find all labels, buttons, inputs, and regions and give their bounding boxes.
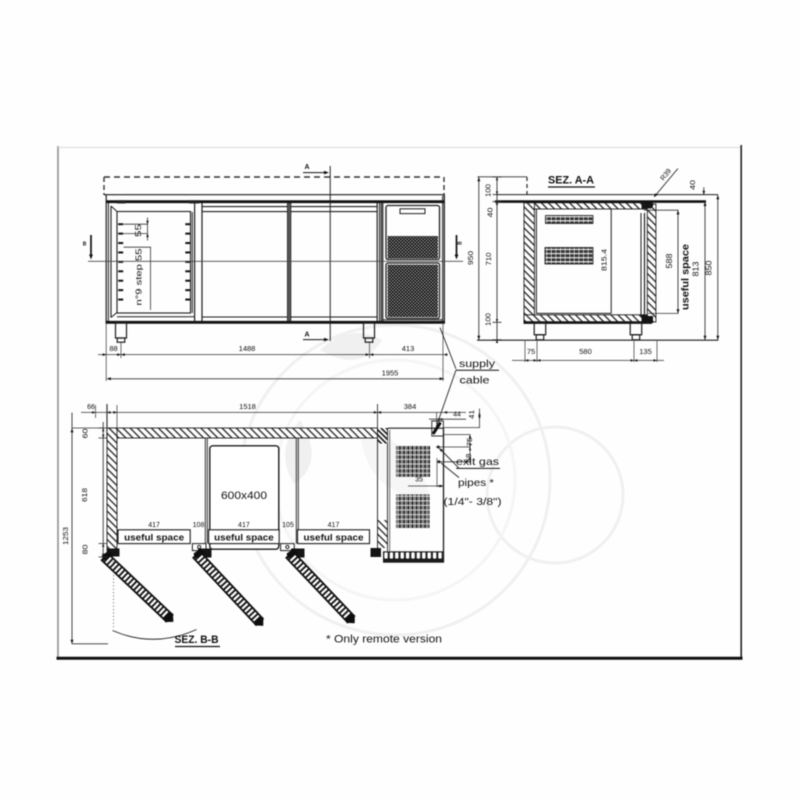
svg-text:75: 75 [467, 437, 474, 446]
svg-text:A: A [304, 332, 309, 339]
svg-text:100: 100 [484, 313, 493, 326]
svg-text:* Only remote version: * Only remote version [326, 634, 442, 646]
svg-text:88: 88 [109, 344, 117, 353]
svg-text:75: 75 [527, 347, 535, 356]
svg-text:35: 35 [415, 477, 423, 484]
svg-text:55: 55 [133, 224, 143, 237]
svg-text:pipes *: pipes * [458, 477, 494, 489]
svg-text:cable: cable [460, 376, 491, 387]
svg-text:417: 417 [148, 522, 160, 529]
svg-text:600x400: 600x400 [221, 490, 267, 502]
svg-text:80: 80 [81, 545, 90, 555]
svg-text:135: 135 [639, 347, 652, 356]
svg-text:813: 813 [692, 261, 701, 277]
svg-text:1518: 1518 [239, 402, 256, 411]
svg-text:SEZ. B-B: SEZ. B-B [175, 634, 219, 646]
svg-text:108: 108 [193, 522, 205, 529]
svg-text:413: 413 [402, 344, 415, 353]
svg-text:useful space: useful space [124, 533, 184, 544]
svg-text:417: 417 [238, 522, 250, 529]
svg-text:1955: 1955 [382, 369, 399, 378]
svg-text:A: A [304, 164, 309, 171]
svg-text:384: 384 [404, 402, 417, 411]
svg-text:40: 40 [688, 180, 697, 190]
svg-text:B: B [458, 241, 464, 245]
svg-text:588: 588 [665, 253, 674, 269]
svg-text:710: 710 [484, 253, 493, 266]
svg-text:SEZ. A-A: SEZ. A-A [548, 175, 594, 187]
svg-text:850: 850 [705, 260, 714, 276]
svg-text:60: 60 [81, 429, 90, 439]
svg-text:useful space: useful space [304, 533, 364, 544]
svg-text:950: 950 [466, 251, 475, 265]
svg-text:useful space: useful space [680, 244, 692, 310]
svg-text:useful space: useful space [214, 533, 274, 544]
svg-text:1253: 1253 [61, 527, 70, 545]
svg-text:40: 40 [486, 208, 495, 218]
svg-text:1488: 1488 [239, 344, 256, 353]
svg-text:815.4: 815.4 [600, 249, 609, 271]
svg-text:105: 105 [282, 522, 294, 529]
svg-text:44: 44 [453, 411, 461, 418]
svg-text:B: B [83, 242, 87, 248]
svg-text:supply: supply [459, 359, 495, 370]
svg-text:417: 417 [328, 522, 340, 529]
svg-text:exit gas: exit gas [456, 456, 499, 468]
svg-text:41: 41 [469, 410, 476, 419]
svg-text:(1/4"- 3/8"): (1/4"- 3/8") [444, 497, 502, 508]
svg-text:580: 580 [579, 347, 592, 356]
svg-text:66: 66 [87, 404, 95, 411]
svg-text:n°9 step 55: n°9 step 55 [134, 248, 144, 305]
svg-text:100: 100 [484, 184, 493, 197]
svg-text:618: 618 [80, 488, 89, 502]
